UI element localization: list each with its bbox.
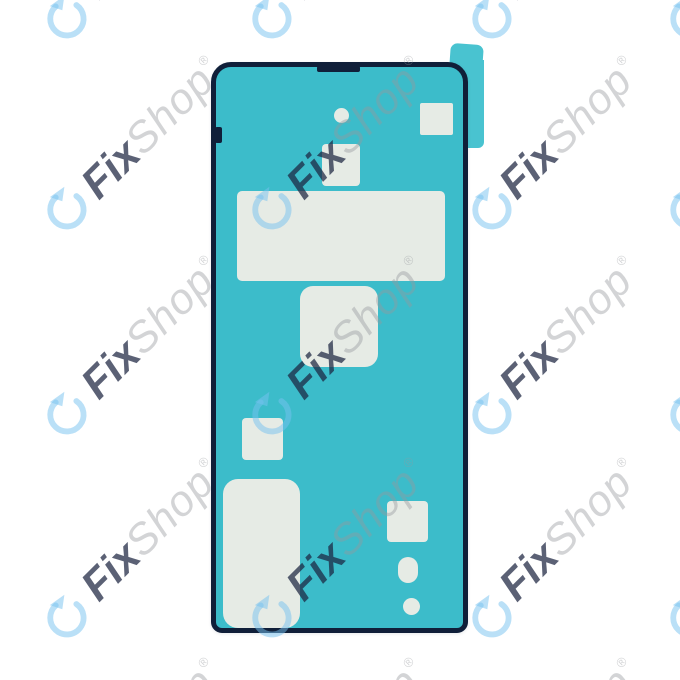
outline-notch [215,127,222,143]
watermark-brand-text: FixShop® [0,598,72,680]
watermark-brand-suffix: Shop [116,256,224,364]
watermark-brand-suffix: Shop [0,56,12,164]
watermark-brand-prefix: Fix [490,532,568,610]
registered-trademark-symbol: ® [195,454,212,471]
watermark-brand-suffix: Shop [116,56,224,164]
adhesive-cutout [223,479,300,628]
adhesive-cutout [237,191,445,281]
watermark-brand-prefix: Fix [490,0,568,8]
circular-arrow-logo-icon [665,182,680,237]
circular-arrow-logo-icon [665,590,680,645]
watermark-brand-suffix: Shop [0,658,12,680]
watermark-brand-text: FixShop® [225,0,488,60]
circular-arrow-logo-icon [42,590,92,645]
registered-trademark-symbol: ® [195,654,212,671]
watermark-brand-suffix: Shop [321,658,429,680]
registered-trademark-symbol: ® [613,252,630,269]
adhesive-sticker [211,62,468,633]
registered-trademark-symbol: ® [613,454,630,471]
adhesive-cutout [420,103,453,135]
adhesive-cutout [398,557,418,583]
watermark-brand-text: FixShop® [20,0,283,60]
watermark-brand-prefix: Fix [490,130,568,208]
circular-arrow-logo-icon [467,387,517,442]
watermark-brand-prefix: Fix [72,130,150,208]
watermark-brand-text: FixShop® [438,398,680,661]
watermark-brand-suffix: Shop [116,658,224,680]
circular-arrow-logo-icon [247,0,297,46]
watermark-brand-prefix: Fix [72,0,150,8]
outline-notch [317,66,360,72]
circular-arrow-logo-icon [467,0,517,46]
registered-trademark-symbol: ® [613,52,630,69]
product-photo: FixShop®FixShop®FixShop®FixShop®FixShop®… [0,0,680,680]
watermark-brand-text: FixShop® [438,196,680,459]
adhesive-cutout [300,286,378,367]
watermark-brand-prefix: Fix [490,330,568,408]
adhesive-cutout [387,501,428,542]
watermark-brand-suffix: Shop [116,458,224,566]
watermark-brand-text: FixShop® [0,398,72,661]
adhesive-cutout [403,598,420,615]
watermark-brand-prefix: Fix [72,532,150,610]
adhesive-cutout [242,418,283,460]
watermark-brand-suffix: Shop [0,458,12,566]
registered-trademark-symbol: ® [613,654,630,671]
watermark-brand-prefix: Fix [72,330,150,408]
watermark-brand-prefix: Fix [277,0,355,8]
watermark-brand-suffix: Shop [534,256,642,364]
registered-trademark-symbol: ® [400,654,417,671]
adhesive-cutout [322,144,360,186]
watermark-brand-text: FixShop® [0,0,72,260]
registered-trademark-symbol: ® [195,252,212,269]
circular-arrow-logo-icon [42,387,92,442]
circular-arrow-logo-icon [665,387,680,442]
watermark-brand-suffix: Shop [534,458,642,566]
adhesive-cutout [334,108,349,123]
circular-arrow-logo-icon [42,182,92,237]
circular-arrow-logo-icon [467,590,517,645]
watermark-brand-suffix: Shop [534,56,642,164]
circular-arrow-logo-icon [665,0,680,46]
circular-arrow-logo-icon [467,182,517,237]
watermark-brand-suffix: Shop [534,658,642,680]
watermark-brand-text: FixShop® [0,0,72,60]
registered-trademark-symbol: ® [195,52,212,69]
watermark-brand-text: FixShop® [0,196,72,459]
watermark-brand-text: FixShop® [438,598,680,680]
watermark-brand-suffix: Shop [0,256,12,364]
circular-arrow-logo-icon [42,0,92,46]
